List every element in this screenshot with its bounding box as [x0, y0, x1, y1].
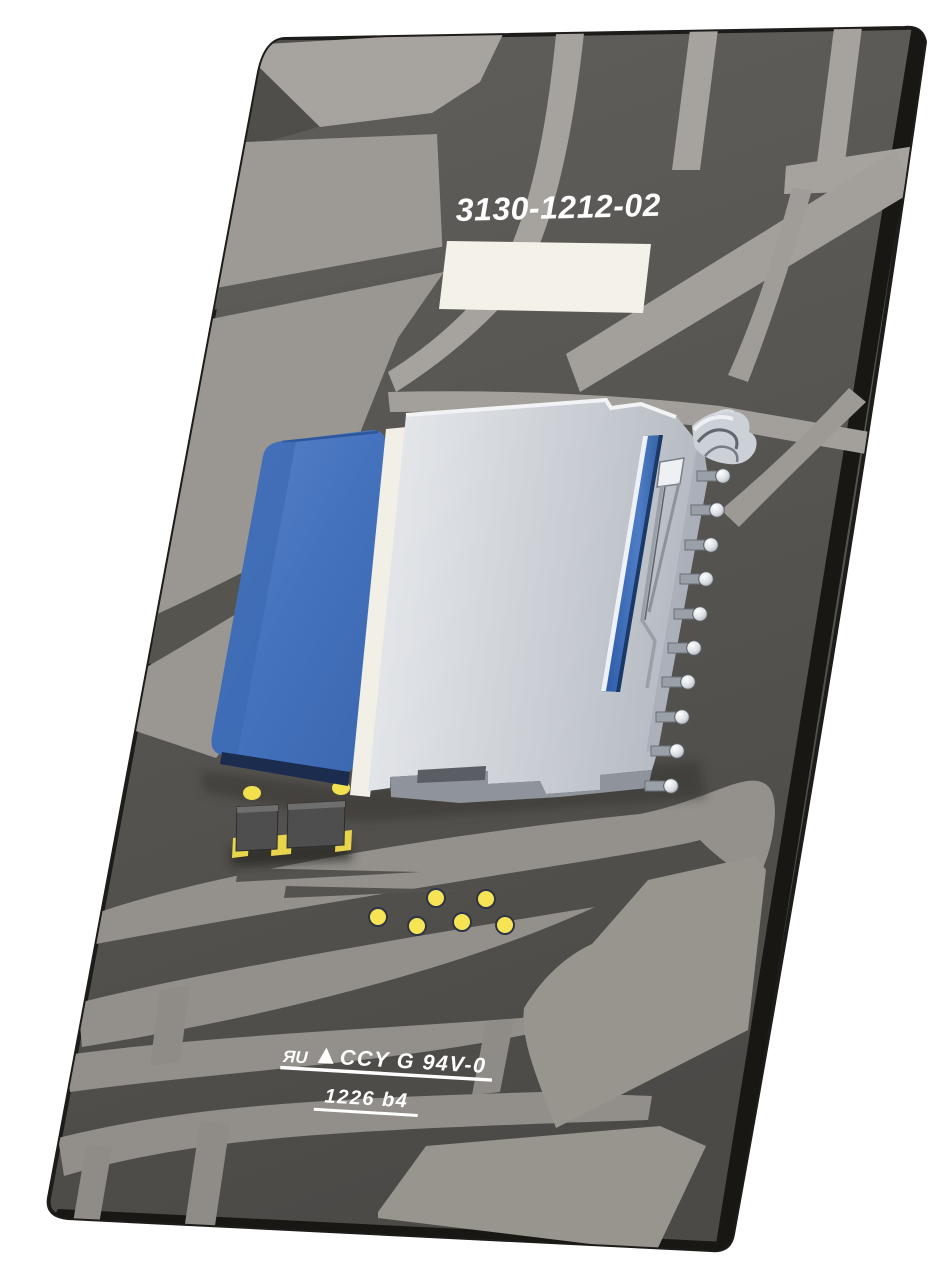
svg-text:ЯU: ЯU — [281, 1047, 308, 1068]
svg-text:3130-1212-02: 3130-1212-02 — [455, 187, 661, 228]
